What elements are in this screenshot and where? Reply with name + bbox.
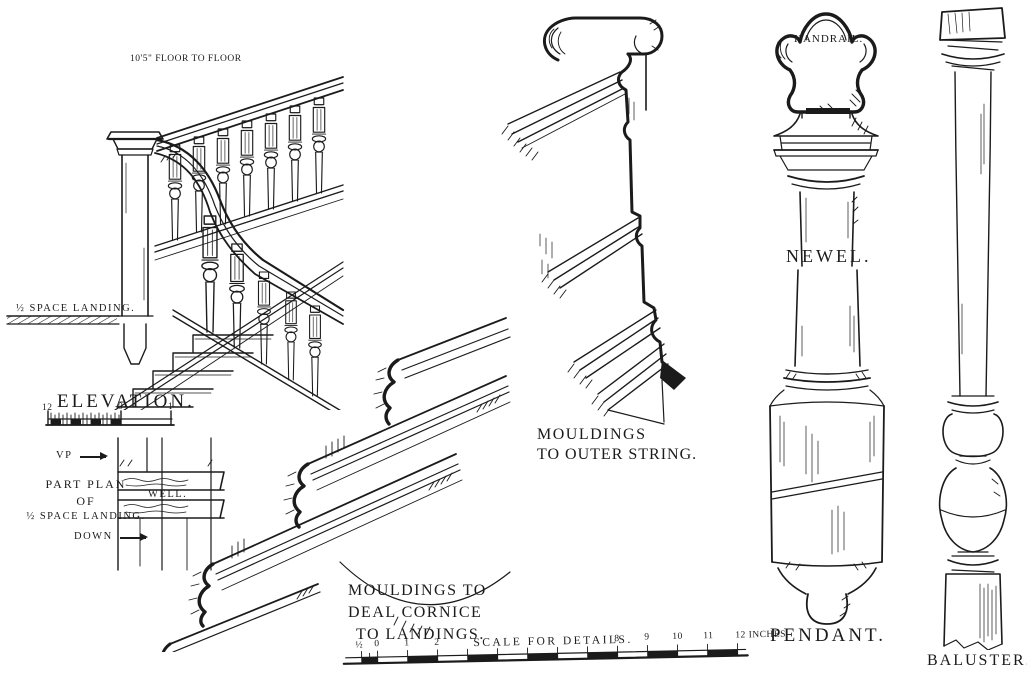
baluster-label: BALUSTER.: [927, 653, 1027, 670]
outer-string-figure: [478, 2, 713, 452]
part-plan-title-line2: OF: [20, 495, 152, 508]
baluster-figure: [922, 4, 1024, 650]
outer-string-label-line2: TO OUTER STRING.: [537, 447, 697, 464]
detail-scale-tick-8: 8: [614, 635, 619, 645]
newel-label: NEWEL.: [786, 247, 871, 266]
cornice-label-line2: DEAL CORNICE: [348, 605, 487, 622]
cornice-label-line1: MOULDINGS TO: [348, 583, 487, 600]
detail-scale-tick-1: 1: [404, 639, 409, 649]
pendant-drawing: [746, 266, 914, 628]
baluster-drawing: [922, 4, 1024, 650]
detail-scale-tick-0: 0: [374, 640, 379, 650]
part-plan-title: PART PLAN OF ½ SPACE LANDING.: [20, 478, 152, 522]
elevation-scale-tick-0: 0: [118, 403, 123, 413]
cornice-label: MOULDINGS TO DEAL CORNICE TO LANDINGS.: [348, 583, 487, 643]
detail-scale-tick-10: 10: [672, 633, 683, 643]
vp-label: VP: [56, 450, 72, 461]
outer-string-drawing: [478, 2, 713, 452]
part-plan-title-line3: ½ SPACE LANDING.: [20, 511, 152, 522]
outer-string-label: MOULDINGS TO OUTER STRING.: [537, 427, 697, 464]
pendant-figure: [746, 266, 914, 628]
handrail-label: HANDRAIL.: [794, 34, 863, 46]
down-label: DOWN: [74, 531, 113, 542]
elevation-scale-tick-12: 12: [42, 404, 53, 414]
detail-scale-tick-11: 11: [703, 632, 713, 642]
detail-scale-tick-9: 9: [644, 633, 649, 643]
half-space-landing-label: ½ SPACE LANDING.: [16, 303, 135, 314]
detail-scale-end-label: 12 INCHES.: [735, 631, 789, 642]
detail-scale-tick-half: ½: [355, 641, 363, 651]
down-arrow-icon: [120, 537, 146, 539]
part-plan-title-line1: PART PLAN: [20, 478, 152, 491]
vp-arrow-icon: [80, 456, 106, 458]
floor-to-floor-note: 10'5" FLOOR TO FLOOR: [130, 55, 242, 65]
outer-string-label-line1: MOULDINGS: [537, 427, 697, 444]
engraving-plate: 10'5" FLOOR TO FLOOR ½ SPACE LANDING. EL…: [0, 0, 1027, 680]
detail-scale-tick-2: 2: [434, 639, 439, 649]
